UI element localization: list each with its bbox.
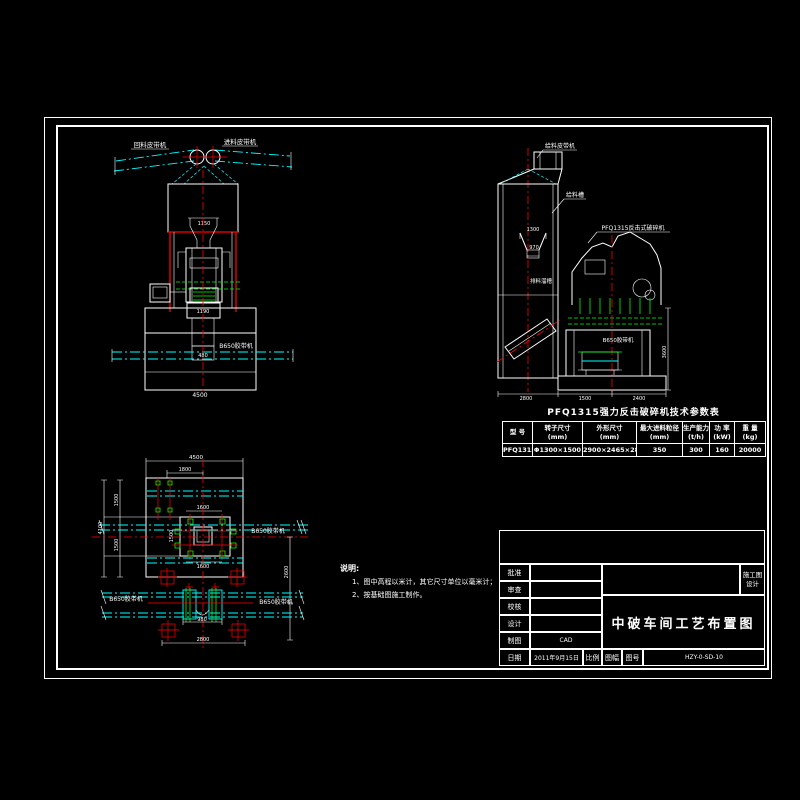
col-model: 型 号 — [503, 422, 533, 444]
drawing-sheet: 回料皮带机 进料皮带机 1150 1190 — [0, 0, 800, 800]
plan-dim-top-inner: 1800 — [179, 467, 192, 473]
belt-label-left: 回料皮带机 — [134, 140, 167, 149]
plan-dim-right: 2600 — [284, 566, 290, 579]
plan-conveyor-label-right: B650胶带机 — [251, 527, 285, 535]
col-feedsize: 最大进料粒径(mm) — [637, 422, 683, 444]
plan-dim-bottom: 2800 — [197, 637, 210, 643]
discharge-chute-label: 排料溜槽 — [530, 277, 553, 285]
crusher-label: PFQ1315反击式破碎机 — [601, 224, 664, 232]
cell-rotor: Φ1300×1500 — [533, 444, 583, 457]
title-block-empty — [602, 564, 740, 595]
chute-label: 给料槽 — [566, 191, 584, 199]
row-label-draft: 制图 — [499, 632, 530, 649]
belt-label-right: 进料皮带机 — [224, 137, 257, 146]
design-stage-line2: 设计 — [746, 580, 759, 588]
side-dim-a: 1300 — [527, 227, 540, 233]
row-value-design — [530, 615, 602, 632]
design-stage-line1: 施工图 — [743, 571, 763, 579]
plan-dim-top: 4500 — [189, 455, 203, 461]
plan-dim-pulley: 980 — [197, 617, 207, 623]
front-conveyor-label: B650胶带机 — [219, 342, 253, 350]
front-elevation-view: 回料皮带机 进料皮带机 1150 1190 — [112, 137, 293, 399]
cell-model: PFQ1315 — [503, 444, 533, 457]
side-dim-bl: 2800 — [520, 396, 533, 402]
col-capacity: 生产能力(t/h) — [683, 422, 710, 444]
design-stage: 施工图 设计 — [740, 564, 765, 595]
plan-view: 4500 1800 1500 1500 4100 1600 1500 1600 — [92, 455, 308, 648]
row-value-check — [530, 598, 602, 615]
row-value-review — [530, 581, 602, 598]
parameters-table: PFQ1315强力反击破碎机技术参数表 型 号 转子尺寸(mm) 外形尺寸(mm… — [502, 405, 765, 457]
row-label-design: 设计 — [499, 615, 530, 632]
cell-weight: 20000 — [735, 444, 766, 457]
side-dim-right: 3600 — [662, 346, 668, 359]
plan-dim-inner-left: 1500 — [169, 530, 175, 543]
cell-power: 160 — [710, 444, 735, 457]
col-power: 功 率(kW) — [710, 422, 735, 444]
row-value-approve — [530, 564, 602, 581]
cad-drawing-canvas: 回料皮带机 进料皮带机 1150 1190 — [0, 0, 800, 800]
note-item: 1、图中高程以米计，其它尺寸单位以毫米计； — [352, 576, 496, 589]
revision-area — [499, 530, 765, 564]
feed-belt-label: 给料皮带机 — [545, 142, 575, 150]
notes: 说明: 1、图中高程以米计，其它尺寸单位以毫米计； 2、按基础图施工制作。 — [340, 563, 496, 603]
row-label-review: 审查 — [499, 581, 530, 598]
plan-dim-left-lower: 1500 — [114, 539, 120, 552]
parameters-table-title: PFQ1315强力反击破碎机技术参数表 — [502, 405, 765, 418]
side-dim-bm: 1500 — [579, 396, 592, 402]
title-block: 批准 审查 校核 设计 制图 CAD 日期 2011年9月15日 比例 图幅 图… — [499, 530, 765, 666]
col-weight: 重 量(kg) — [735, 422, 766, 444]
date-label: 日期 — [499, 649, 530, 666]
scale-label: 比例 — [583, 649, 602, 666]
front-width-dim: 4500 — [192, 392, 207, 399]
table-header-row: 型 号 转子尺寸(mm) 外形尺寸(mm) 最大进料粒径(mm) 生产能力(t/… — [503, 422, 766, 444]
date-value: 2011年9月15日 — [530, 649, 583, 666]
col-rotor: 转子尺寸(mm) — [533, 422, 583, 444]
side-dim-br: 2400 — [633, 396, 646, 402]
col-overall: 外形尺寸(mm) — [583, 422, 637, 444]
plan-dim-left-upper: 1500 — [114, 494, 120, 507]
plan-conveyor-label-left: B650胶带机 — [109, 595, 143, 603]
cell-overall: 2900×2465×2890 — [583, 444, 637, 457]
plan-conveyor-label-bottom: B650胶带机 — [259, 598, 293, 606]
drawing-title: 中破车间工艺布置图 — [602, 595, 765, 649]
cell-capacity: 300 — [683, 444, 710, 457]
plan-dim-left-total: 4100 — [98, 522, 104, 535]
sheet-label: 图幅 — [602, 649, 622, 666]
hopper-dim-label: 1150 — [198, 221, 211, 227]
side-dim-b: 970 — [529, 245, 539, 251]
notes-title: 说明: — [340, 563, 496, 574]
cell-feedsize: 350 — [637, 444, 683, 457]
row-value-draft: CAD — [530, 632, 602, 649]
side-elevation-view: 给料皮带机 给料槽 1300 970 排料溜槽 — [497, 142, 671, 402]
drawing-no-label: 图号 — [622, 649, 643, 666]
row-label-check: 校核 — [499, 598, 530, 615]
note-item: 2、按基础图施工制作。 — [352, 589, 496, 602]
side-conveyor-label: B650胶带机 — [603, 336, 634, 344]
table-data-row: PFQ1315 Φ1300×1500 2900×2465×2890 350 30… — [503, 444, 766, 457]
row-label-approve: 批准 — [499, 564, 530, 581]
drawing-no-value: HZY-0-SD-10 — [643, 649, 765, 666]
